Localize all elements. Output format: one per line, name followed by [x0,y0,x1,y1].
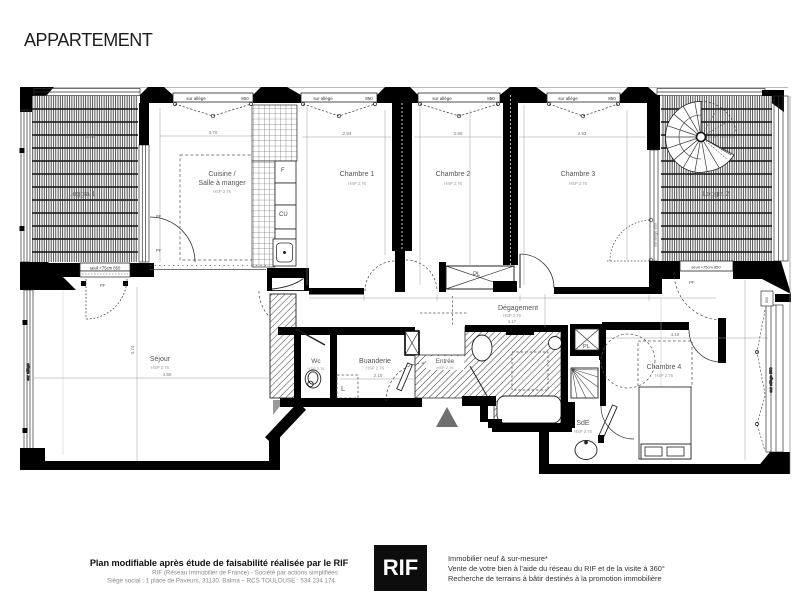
svg-text:RIF: RIF [383,555,418,580]
svg-text:850: 850 [608,96,616,101]
svg-text:850: 850 [487,96,495,101]
svg-text:HSP 2.76: HSP 2.76 [574,429,593,434]
svg-text:HSP 2.76: HSP 2.76 [444,181,463,186]
svg-text:sur allège 850: sur allège 850 [768,367,773,393]
svg-text:4.50: 4.50 [163,372,172,377]
svg-text:4.19: 4.19 [671,332,680,337]
svg-text:Loggia 1: Loggia 1 [69,191,96,198]
svg-text:2.90: 2.90 [454,131,463,136]
svg-text:F: F [281,168,285,174]
svg-text:HSP 2.76: HSP 2.76 [348,181,367,186]
svg-text:Chambre 3: Chambre 3 [561,171,596,178]
svg-text:sur allège: sur allège [25,363,30,381]
svg-text:850: 850 [765,297,769,303]
svg-text:2.10: 2.10 [374,373,383,378]
svg-text:850: 850 [365,96,373,101]
svg-text:Entrée: Entrée [436,358,455,365]
svg-text:SdE: SdE [576,420,590,427]
svg-text:sur allège: sur allège [313,96,333,101]
svg-text:HSP 2.76: HSP 2.76 [503,313,522,318]
svg-text:Vente de votre bien à l'aide d: Vente de votre bien à l'aide du réseau d… [448,564,665,573]
svg-text:2.93: 2.93 [343,131,352,136]
svg-text:Plan modifiable après étude de: Plan modifiable après étude de faisabili… [90,558,349,568]
svg-text:HSP 2.76: HSP 2.76 [366,366,385,371]
svg-text:Loggia 2: Loggia 2 [703,191,730,198]
svg-text:3.70: 3.70 [209,130,218,135]
svg-text:Séjour: Séjour [150,356,171,363]
svg-text:CU: CU [279,212,288,218]
svg-text:Immobilier neuf & sur-mesure*: Immobilier neuf & sur-mesure* [448,554,548,563]
svg-text:850: 850 [241,96,249,101]
svg-text:HSP 2.76: HSP 2.76 [151,365,170,370]
svg-text:PL: PL [473,272,481,278]
svg-text:L: L [341,384,345,393]
svg-text:Buanderie: Buanderie [359,358,391,365]
svg-text:PF: PF [156,248,162,253]
svg-text:Recherche de terrains à bâtir: Recherche de terrains à bâtir destinés à… [448,574,662,583]
svg-text:APPARTEMENT: APPARTEMENT [24,30,153,50]
svg-text:HSP 2.76: HSP 2.76 [213,189,232,194]
svg-text:HSP 2.76: HSP 2.76 [569,181,588,186]
svg-text:sur allège: sur allège [186,96,206,101]
svg-text:Dégagement: Dégagement [498,305,538,312]
svg-text:Wc: Wc [311,358,321,365]
svg-text:Chambre 1: Chambre 1 [340,171,375,178]
svg-text:Chambre 4: Chambre 4 [647,364,682,371]
svg-text:Siège social : 1 place de Pave: Siège social : 1 place de Paveurs, 31130… [107,578,335,585]
svg-text:Cuisine /: Cuisine / [208,171,235,178]
svg-text:HSP 2.76: HSP 2.76 [436,365,454,370]
svg-text:PF: PF [689,280,695,285]
svg-text:1.17: 1.17 [508,319,517,324]
svg-text:Chambre 2: Chambre 2 [436,171,471,178]
svg-text:Salle à manger: Salle à manger [198,180,246,187]
svg-text:sur allège: sur allège [558,96,578,101]
svg-text:seuil +75cm 850: seuil +75cm 850 [90,266,121,271]
svg-text:4.74: 4.74 [130,345,135,354]
svg-text:2.93: 2.93 [578,131,587,136]
svg-text:PL: PL [583,344,590,350]
svg-text:HSP 2.76: HSP 2.76 [655,373,674,378]
svg-text:2.86: 2.86 [86,134,95,139]
svg-text:sur allège: sur allège [432,96,452,101]
svg-text:PF: PF [100,283,106,288]
svg-text:seuil +75cm 850: seuil +75cm 850 [691,265,721,270]
svg-text:sur allège 850: sur allège 850 [654,223,658,247]
svg-text:RIF (Réseau Immobilier de Fran: RIF (Réseau Immobilier de France) - Soci… [152,570,338,577]
